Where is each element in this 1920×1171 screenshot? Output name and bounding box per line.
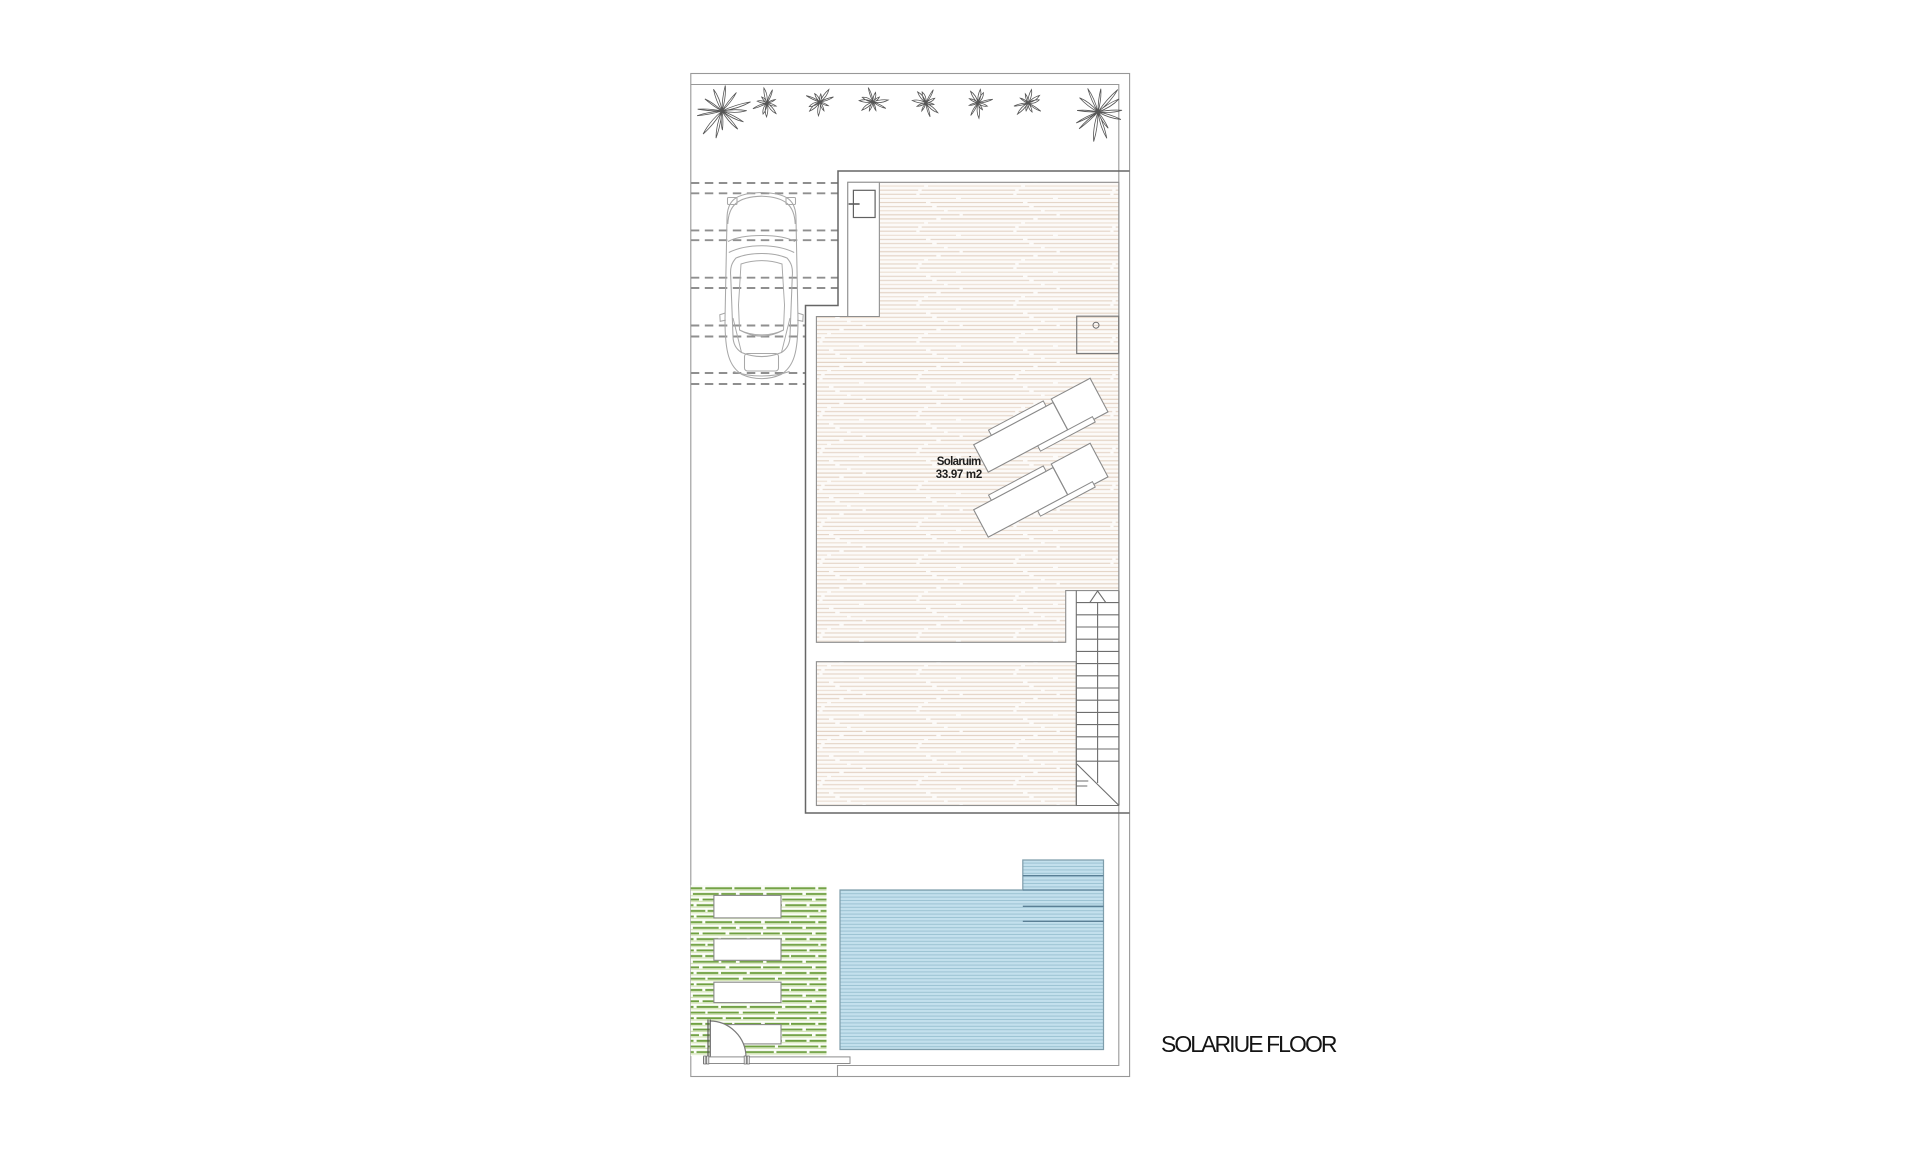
- svg-text:SOLARIUE FLOOR: SOLARIUE FLOOR: [1161, 1031, 1338, 1057]
- svg-text:33.97 m2: 33.97 m2: [936, 469, 983, 481]
- svg-text:Solaruim: Solaruim: [937, 456, 982, 468]
